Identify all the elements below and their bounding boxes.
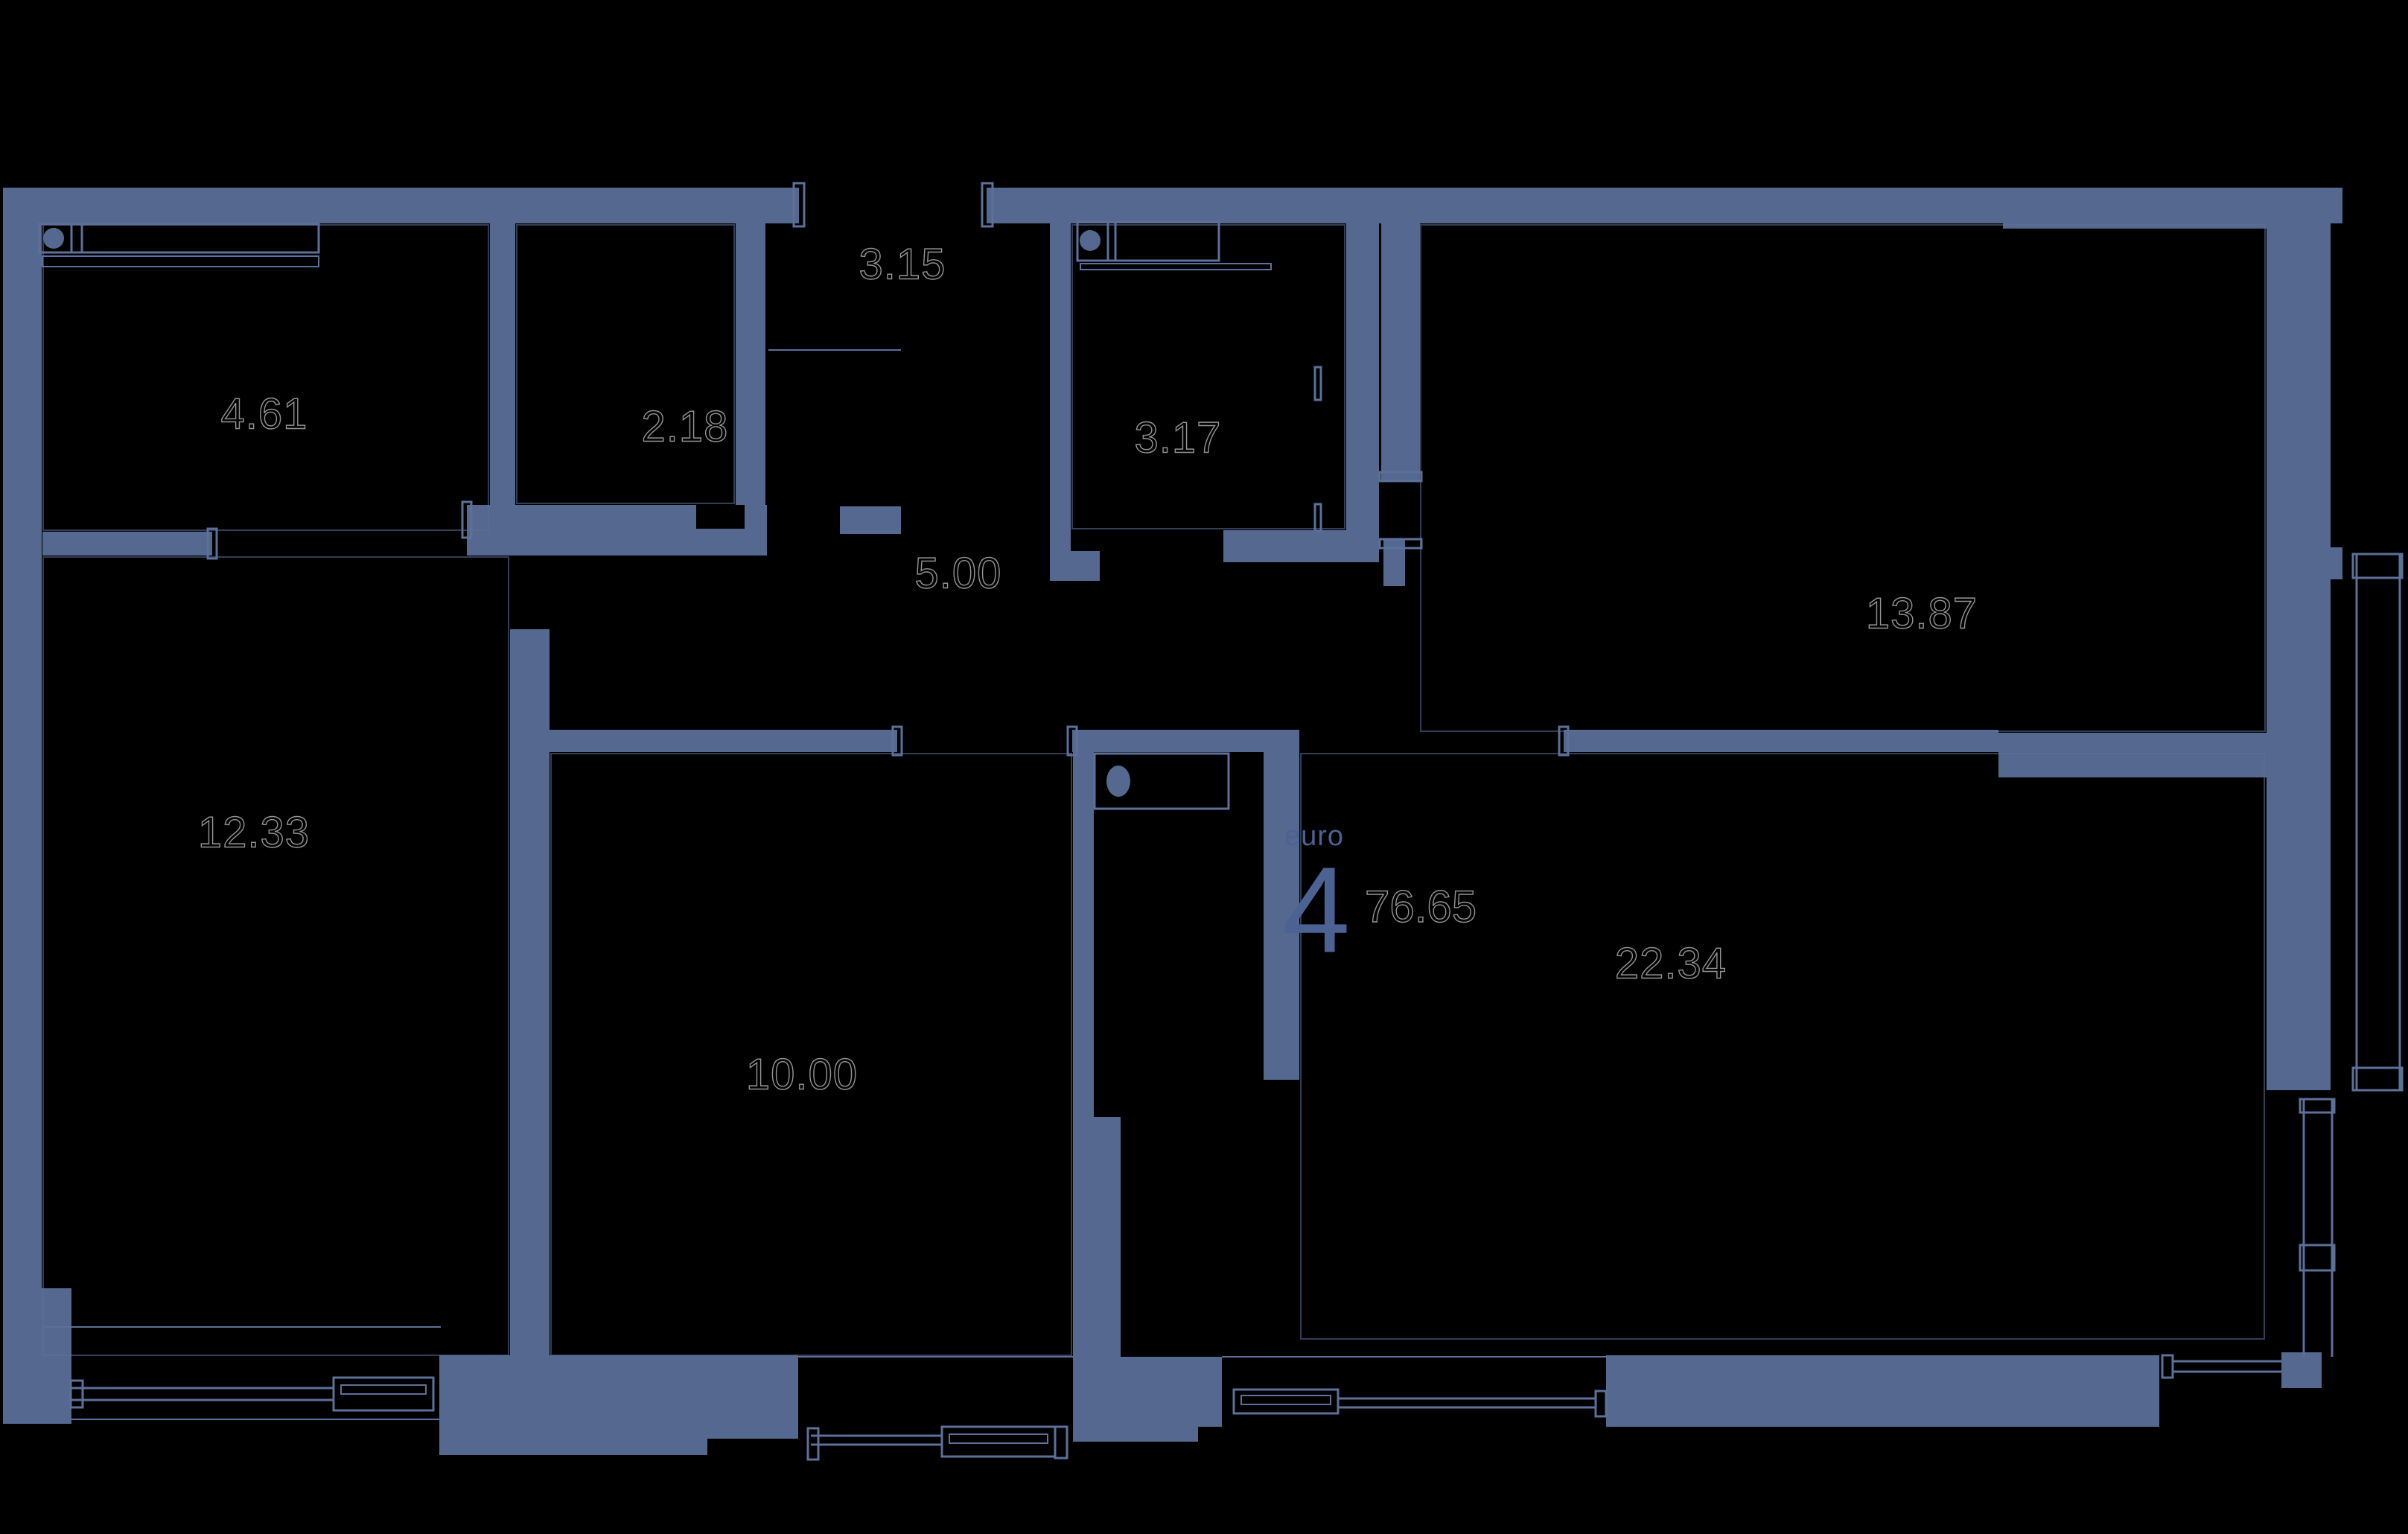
toilet-bowl-icon — [1106, 766, 1130, 797]
door-jamb — [1315, 504, 1321, 531]
window-jamb — [1055, 1427, 1067, 1458]
sink-fixture-1 — [39, 224, 319, 267]
balcony-door-leaf — [949, 1434, 1048, 1443]
door-notch-218 — [696, 505, 745, 529]
windows — [42, 554, 2402, 1460]
wall-niche-left-wide — [1094, 1117, 1121, 1357]
counter-front — [42, 256, 319, 267]
window-jamb — [71, 1381, 83, 1407]
room-area-label-1387: 13.87 — [1866, 589, 1978, 637]
sink-fixture-2 — [1077, 222, 1271, 270]
room-outline-218 — [517, 225, 734, 503]
room-area-label-1233: 12.33 — [198, 808, 310, 856]
wall-right-foot — [2302, 547, 2342, 579]
wall-right-block — [2267, 223, 2331, 1090]
wall-2234-top-thick — [1998, 733, 2267, 777]
room-outline-461 — [43, 225, 488, 530]
balcony-door-leaf — [341, 1385, 426, 1394]
window-connector — [2300, 1099, 2334, 1113]
wall-top-right — [987, 188, 2342, 223]
wall-bottom-pier-1b — [439, 1415, 707, 1455]
toilet-fixture — [1095, 754, 1229, 809]
wall-461-bottom — [42, 532, 212, 556]
room-area-label-2234: 22.34 — [1615, 939, 1727, 987]
room-area-label-500: 5.00 — [915, 549, 1002, 597]
door-jamb — [1315, 367, 1321, 400]
wall-left — [3, 188, 42, 1291]
balcony-door — [942, 1427, 1055, 1457]
wall-1000-top — [529, 730, 897, 752]
wall-317-right — [1346, 223, 1379, 530]
window-jamb — [1596, 1391, 1606, 1416]
window-connector — [2300, 1245, 2334, 1270]
unit-info: euro 4 76.65 — [1282, 821, 1477, 978]
room-area-label-461: 4.61 — [221, 389, 308, 438]
window-connector — [2353, 554, 2402, 578]
wall-317-bottom — [1223, 530, 1379, 562]
balcony-door — [1234, 1390, 1338, 1413]
balcony-door-leaf — [1241, 1395, 1331, 1404]
wall-317-left — [1050, 223, 1071, 560]
room-outlines — [43, 225, 2265, 1355]
wall-hall-1387-upper — [1381, 223, 1420, 480]
wall-corner-bottom-right — [2281, 1352, 2322, 1388]
room-area-label-317: 3.17 — [1135, 413, 1222, 462]
window-jamb — [2162, 1355, 2173, 1378]
wall-2234-top — [1564, 730, 1998, 752]
wall-317-left-stub — [1050, 551, 1100, 581]
room-area-label-1000: 10.00 — [746, 1050, 858, 1098]
sink-basin-icon — [43, 228, 64, 249]
wall-top-left — [3, 188, 799, 223]
wall-stub-315 — [840, 506, 901, 534]
unit-total-area: 76.65 — [1365, 882, 1477, 932]
floor-plan: 4.61 2.18 3.15 3.17 5.00 13.87 12.33 10.… — [0, 0, 2408, 1534]
room-outline-317 — [1072, 225, 1345, 529]
wall-hall-1387-lower — [1383, 540, 1405, 586]
room-outline-1387 — [1421, 225, 2265, 731]
walls — [3, 188, 2342, 1455]
sink-basin-icon — [1080, 230, 1101, 251]
wall-bottom-pier-3 — [1606, 1355, 2159, 1427]
window-connector — [2353, 1068, 2402, 1090]
wall-461-218 — [490, 223, 515, 532]
unit-rooms-count: 4 — [1282, 841, 1350, 978]
room-area-label-315: 3.15 — [859, 240, 946, 288]
wall-218-315 — [736, 223, 765, 532]
room-outline-2234 — [1301, 754, 2264, 1339]
room-outline-1233 — [43, 557, 509, 1355]
counter-front — [1080, 264, 1271, 270]
wall-bottom-pier-2b — [1073, 1415, 1198, 1442]
room-area-label-218: 2.18 — [642, 402, 729, 451]
wall-niche-left — [1073, 752, 1094, 1357]
